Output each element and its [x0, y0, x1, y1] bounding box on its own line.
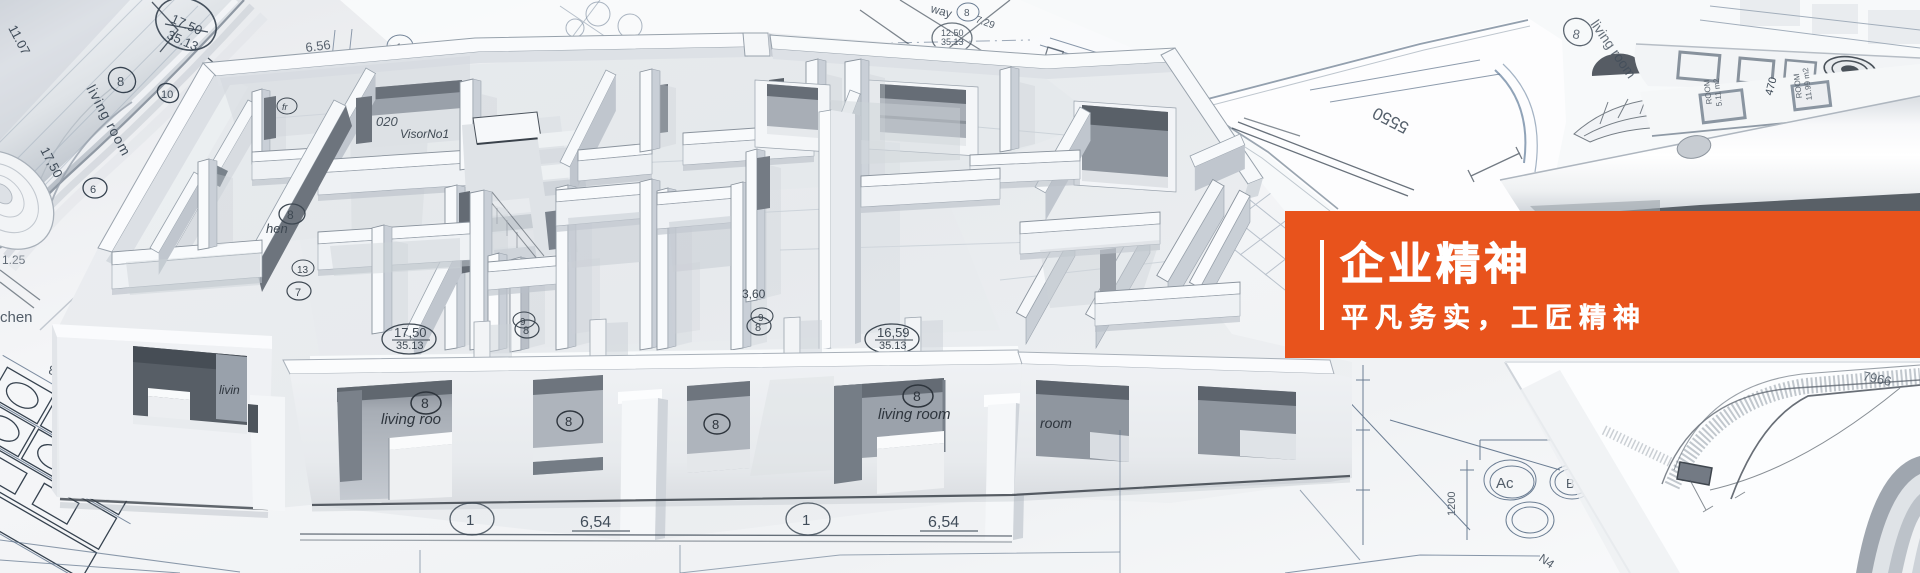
svg-text:living room: living room	[878, 406, 951, 423]
svg-text:6: 6	[90, 184, 96, 196]
svg-text:8: 8	[117, 74, 124, 89]
svg-text:13: 13	[297, 265, 309, 276]
svg-text:8: 8	[523, 325, 529, 337]
svg-text:8: 8	[964, 8, 970, 19]
svg-text:8: 8	[755, 322, 761, 334]
svg-text:1200: 1200	[1446, 492, 1458, 516]
svg-text:8: 8	[913, 388, 921, 404]
svg-text:35.13: 35.13	[879, 340, 907, 352]
svg-text:Ac: Ac	[1496, 475, 1514, 492]
svg-text:8: 8	[565, 414, 572, 429]
svg-text:3,60: 3,60	[742, 287, 766, 301]
svg-text:7: 7	[295, 287, 301, 299]
svg-text:livin: livin	[219, 383, 240, 397]
svg-text:16,59: 16,59	[877, 325, 910, 340]
svg-text:8: 8	[712, 417, 719, 432]
svg-text:living roo: living roo	[381, 411, 441, 428]
svg-text:6,54: 6,54	[580, 514, 611, 531]
svg-text:企业精神: 企业精神	[1340, 240, 1532, 289]
svg-text:hen: hen	[266, 221, 288, 236]
svg-text:room: room	[1040, 415, 1072, 431]
svg-text:6,54: 6,54	[928, 514, 959, 531]
svg-text:1: 1	[466, 512, 474, 529]
svg-text:8: 8	[287, 208, 294, 222]
svg-text:35.13: 35.13	[396, 340, 424, 352]
svg-text:8: 8	[421, 395, 429, 411]
svg-text:1: 1	[802, 512, 810, 529]
svg-text:chen: chen	[0, 309, 33, 326]
svg-text:平凡务实，工匠精神: 平凡务实，工匠精神	[1341, 302, 1647, 333]
svg-text:17,50: 17,50	[394, 325, 427, 340]
svg-text:10: 10	[161, 89, 173, 101]
svg-text:020: 020	[376, 114, 398, 129]
svg-text:VisorNo1: VisorNo1	[400, 127, 449, 141]
